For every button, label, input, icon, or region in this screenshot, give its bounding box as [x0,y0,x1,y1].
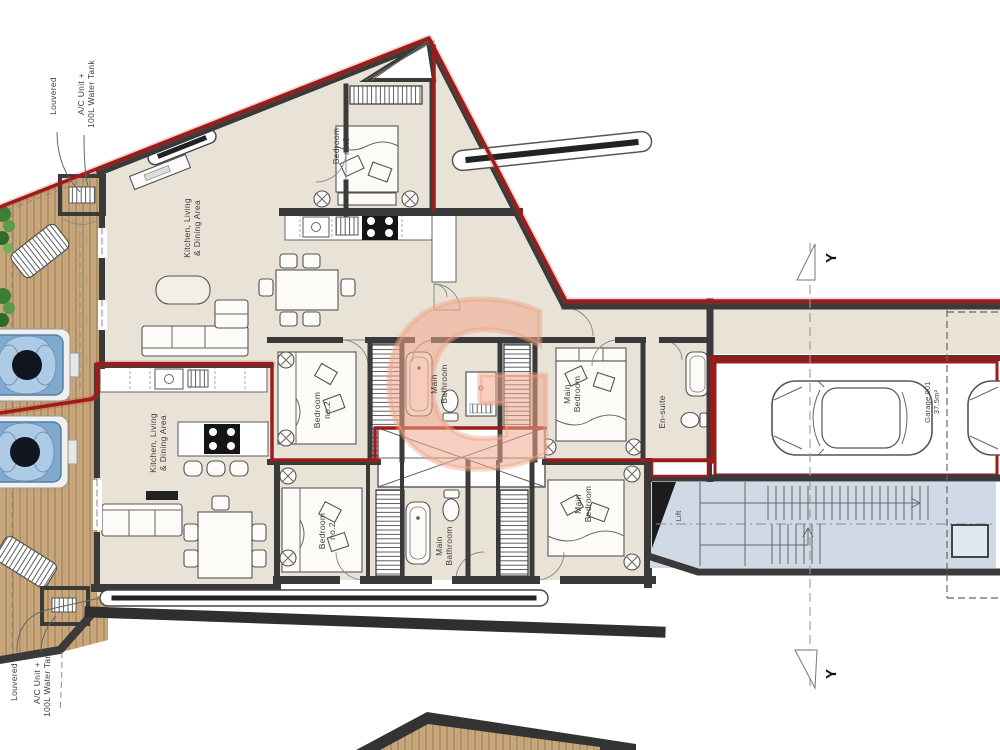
sink-upper [303,217,329,237]
floor-plan: Lift G Y Y Bedroomno.3 Kitchen, Living& … [0,0,1000,750]
stove-upper [362,214,398,240]
label-mainbed-upper-1: Main [562,384,572,404]
tv-lower [146,491,178,500]
label-mainbed-lower-1: Main [573,494,583,514]
label-bedroom3-2: no.3 [341,137,351,155]
label-bath-lower-1: Main [434,536,444,556]
stove-lower [204,424,240,454]
label-ensuite: En-suite [657,395,667,429]
garage [710,358,1000,478]
watermark-logo: G [378,258,563,520]
label-bath-lower-2: Bathroom [444,526,454,565]
label-ac-bottom-1: A/C Unit + [32,662,42,704]
label-louvered-bottom: Louvered [9,663,19,701]
label-ac-bottom-2: 100L Water Tank [42,649,52,717]
coffee-table [156,276,210,304]
section-label-bottom: Y [823,669,840,679]
label-mainbed-lower-2: Bedroom [583,486,593,523]
label-kitchen-upper-1: Kitchen, Living [182,198,192,258]
louver-bar-bottom [100,590,548,606]
label-garage-1: Garage 001 [923,381,932,423]
label-bath-upper-2: Bathroom [439,364,449,403]
label-bedroom2-lower-2: no.2 [327,522,337,540]
label-kitchen-upper-2: & Dining Area [192,200,202,256]
label-bath-upper-1: Main [429,374,439,394]
hot-tub-2 [0,416,77,488]
platform-box [952,525,988,557]
label-bedroom3-1: Bedroom [331,128,341,165]
lift-label-text: Lift [674,510,683,522]
lift-label: Lift [674,510,683,522]
label-bedroom2-lower-1: Bedroom [317,513,327,550]
label-louvered-top: Louvered [48,77,58,115]
label-bedroom2-upper-2: no.2 [322,401,332,419]
section-label-top: Y [823,253,840,263]
lobby-box [652,461,708,476]
sink-lower [155,369,183,389]
label-ac-top-2: 100L Water Tank [86,60,96,128]
label-kitchen-lower-1: Kitchen, Living [148,413,158,473]
label-garage-2: 37.5m² [932,389,941,414]
car-2 [968,381,1000,455]
wardrobe-bedroom3 [350,86,422,104]
label-ac-top-1: A/C Unit + [76,73,86,115]
label-kitchen-lower-2: & Dining Area [158,415,168,471]
car-1 [772,381,932,455]
label-bedroom2-upper-1: Bedroom [312,392,322,429]
label-mainbed-upper-2: Bedroom [572,376,582,413]
hot-tub-1 [0,329,79,401]
